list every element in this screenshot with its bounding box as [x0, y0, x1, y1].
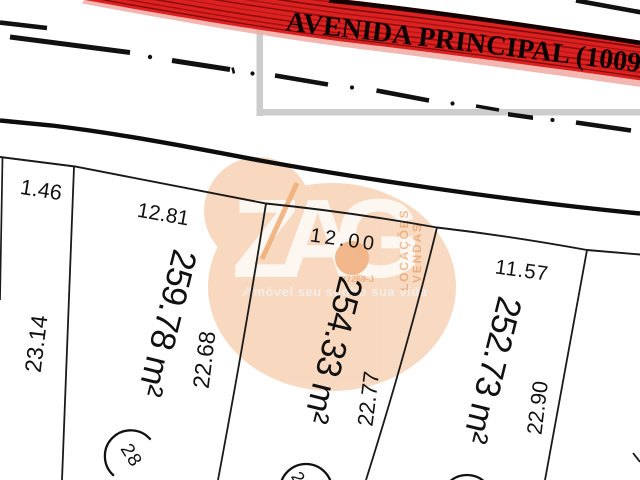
svg-text:VENDAS: VENDAS	[410, 222, 424, 283]
